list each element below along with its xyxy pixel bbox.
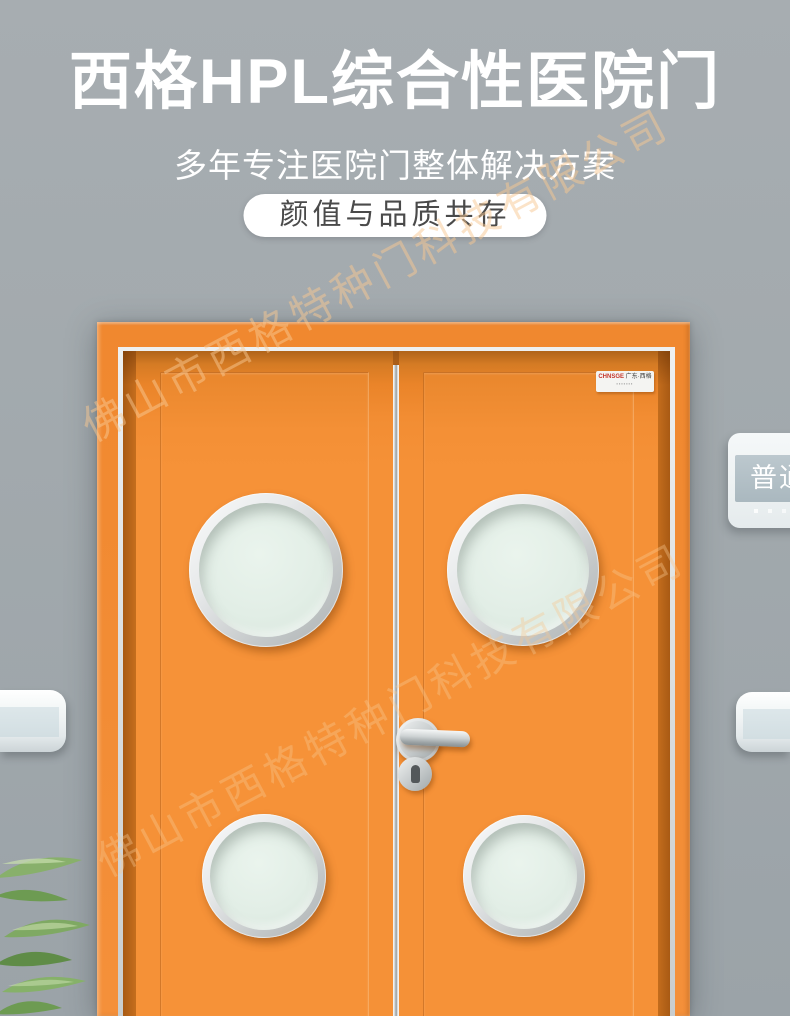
ward-sign-micro-marks — [754, 509, 758, 513]
door-leaves — [136, 351, 658, 1016]
wall-rail-band — [743, 709, 790, 739]
porthole-window-bottom-right — [463, 815, 585, 937]
wall-rail-band — [0, 707, 59, 737]
brand-chinese: 广东·西格 — [626, 374, 652, 380]
plant-leaves-image — [0, 842, 108, 1016]
door-lock-cylinder[interactable] — [398, 757, 432, 791]
keyhole-icon — [411, 765, 420, 783]
porthole-window-top-right — [447, 494, 599, 646]
hospital-door: CHNSGE 广东·西格 ▪▪▪▪▪▪▪ — [97, 322, 690, 1016]
brand-sticker: CHNSGE 广东·西格 ▪▪▪▪▪▪▪ — [596, 371, 654, 392]
ward-sign-label: 普通 — [735, 455, 790, 502]
promo-banner: 西格HPL综合性医院门 多年专注医院门整体解决方案 颜值与品质共存 CHNSG — [0, 0, 790, 1016]
porthole-glass — [471, 823, 577, 929]
page-title: 西格HPL综合性医院门 — [0, 48, 790, 116]
porthole-glass — [457, 504, 589, 636]
ward-sign: 普通 — [728, 433, 790, 528]
brand-sticker-text: CHNSGE 广东·西格 — [596, 373, 654, 381]
brand-micro-text: ▪▪▪▪▪▪▪ — [596, 381, 654, 387]
subtitle: 多年专注医院门整体解决方案 — [0, 139, 790, 187]
porthole-glass — [199, 503, 333, 637]
wall-rail-left — [0, 690, 66, 752]
wall-rail-right — [736, 692, 790, 752]
porthole-glass — [210, 822, 318, 930]
door-lever-handle[interactable] — [400, 728, 471, 747]
porthole-window-bottom-left — [202, 814, 326, 938]
brand-latin: CHNSGE — [598, 374, 624, 380]
porthole-window-top-left — [189, 493, 343, 647]
quality-badge: 颜值与品质共存 — [243, 194, 546, 237]
